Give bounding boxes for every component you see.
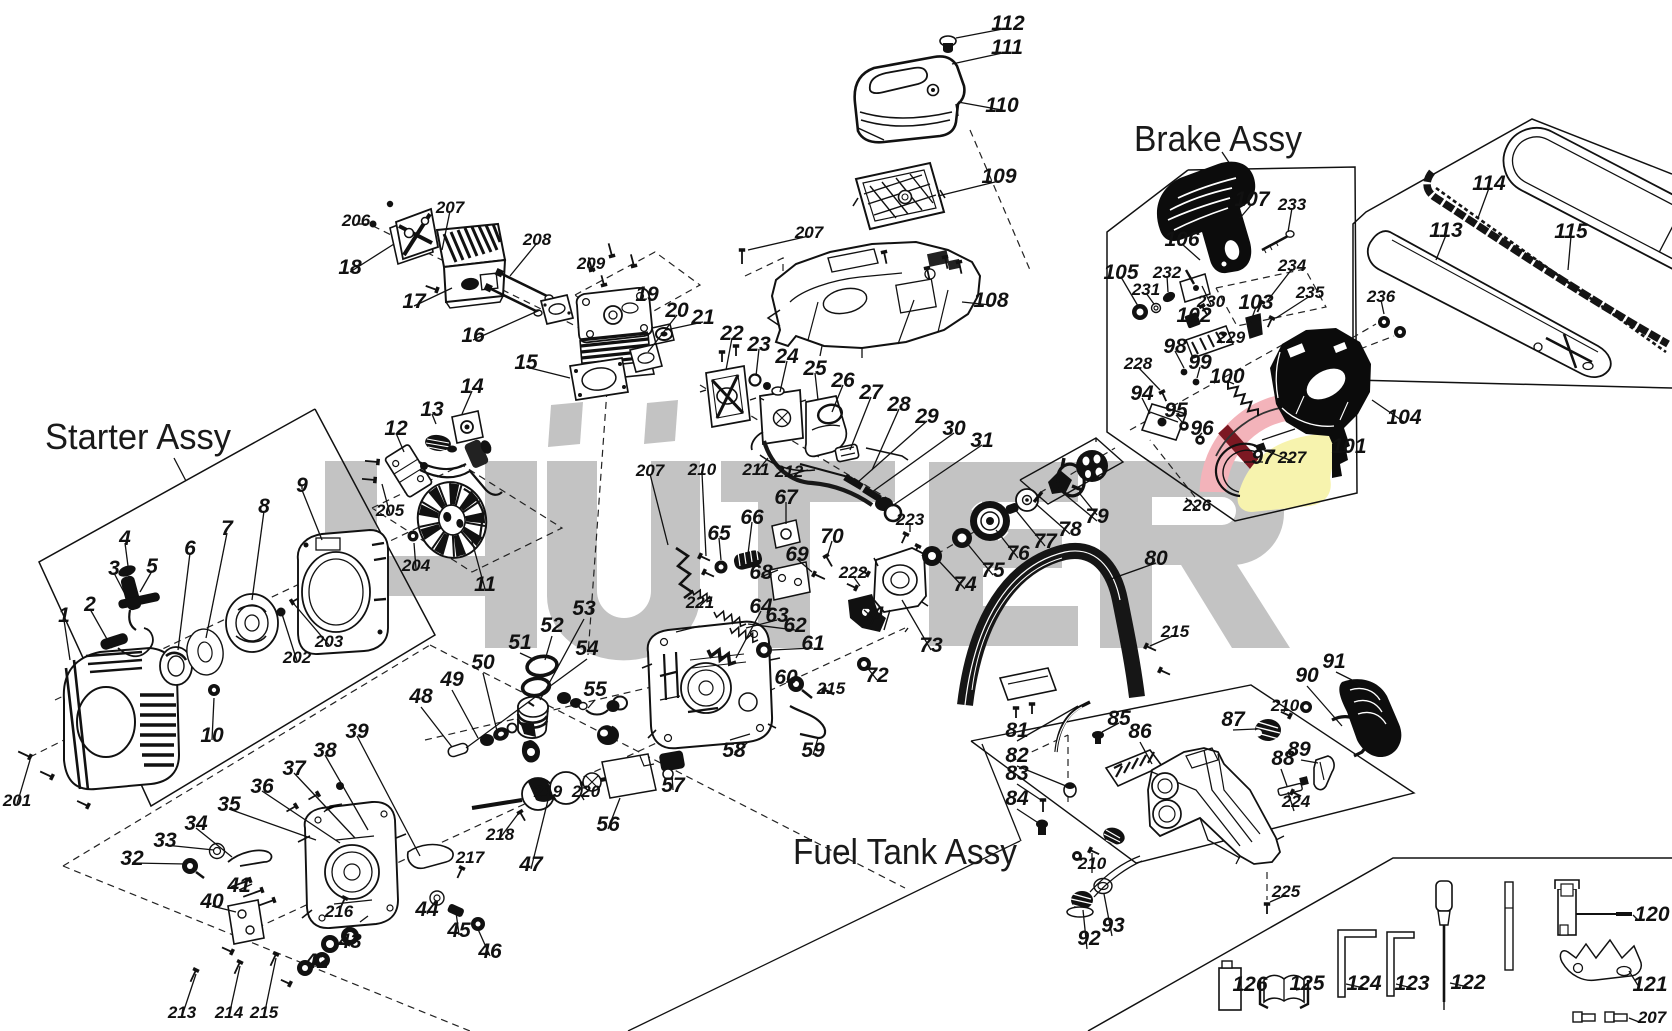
svg-text:87: 87 <box>1221 708 1246 731</box>
svg-text:71: 71 <box>862 603 885 626</box>
svg-text:57: 57 <box>661 774 686 797</box>
svg-text:209: 209 <box>576 254 606 273</box>
svg-text:14: 14 <box>460 375 484 398</box>
svg-text:8: 8 <box>258 495 270 518</box>
svg-text:19: 19 <box>635 283 659 306</box>
svg-text:230: 230 <box>1196 292 1226 311</box>
svg-text:15: 15 <box>514 351 538 374</box>
svg-text:47: 47 <box>518 853 544 876</box>
svg-text:93: 93 <box>1101 914 1125 937</box>
svg-text:53: 53 <box>572 597 596 620</box>
svg-text:37: 37 <box>282 757 307 780</box>
svg-text:213: 213 <box>167 1003 197 1022</box>
svg-text:215: 215 <box>1160 622 1190 641</box>
svg-text:39: 39 <box>345 720 369 743</box>
svg-text:89: 89 <box>1287 738 1311 761</box>
svg-text:77: 77 <box>1033 530 1058 553</box>
svg-text:38: 38 <box>313 739 337 762</box>
svg-text:12: 12 <box>384 417 408 440</box>
svg-text:210: 210 <box>687 460 717 479</box>
svg-text:75: 75 <box>981 559 1005 582</box>
svg-text:231: 231 <box>1131 280 1160 299</box>
svg-text:10: 10 <box>200 724 224 747</box>
svg-text:33: 33 <box>153 829 177 852</box>
svg-text:21: 21 <box>690 306 714 329</box>
svg-text:22: 22 <box>719 322 744 345</box>
svg-text:20: 20 <box>664 299 689 322</box>
svg-text:214: 214 <box>214 1003 244 1022</box>
svg-text:34: 34 <box>184 812 208 835</box>
svg-text:224: 224 <box>1281 792 1311 811</box>
svg-text:3: 3 <box>108 557 120 580</box>
svg-text:40: 40 <box>199 890 224 913</box>
svg-text:227: 227 <box>1277 448 1308 467</box>
svg-text:113: 113 <box>1429 219 1463 242</box>
svg-text:4: 4 <box>118 527 131 550</box>
svg-text:29: 29 <box>914 405 939 428</box>
svg-text:86: 86 <box>1128 720 1152 743</box>
svg-text:41: 41 <box>226 874 250 897</box>
svg-text:13: 13 <box>420 398 444 421</box>
svg-text:9: 9 <box>296 474 308 497</box>
svg-text:234: 234 <box>1277 256 1307 275</box>
svg-text:100: 100 <box>1209 365 1244 388</box>
svg-text:42: 42 <box>304 950 329 973</box>
svg-text:99: 99 <box>1188 351 1212 374</box>
svg-text:32: 32 <box>120 847 144 870</box>
svg-text:120: 120 <box>1634 903 1669 926</box>
svg-text:207: 207 <box>635 461 666 480</box>
svg-text:28: 28 <box>886 393 911 416</box>
svg-text:216: 216 <box>324 902 354 921</box>
svg-text:50: 50 <box>471 651 495 674</box>
svg-text:126: 126 <box>1232 973 1267 996</box>
svg-text:74: 74 <box>953 573 977 596</box>
svg-text:54: 54 <box>575 637 599 660</box>
svg-text:201: 201 <box>2 791 31 810</box>
svg-text:108: 108 <box>973 289 1008 312</box>
svg-text:81: 81 <box>1005 719 1028 742</box>
svg-text:66: 66 <box>740 506 764 529</box>
svg-text:124: 124 <box>1346 972 1381 995</box>
svg-text:5: 5 <box>146 555 158 578</box>
svg-text:80: 80 <box>1144 547 1168 570</box>
svg-text:48: 48 <box>408 685 433 708</box>
svg-text:114: 114 <box>1472 172 1506 195</box>
svg-text:31: 31 <box>970 429 993 452</box>
svg-text:121: 121 <box>1632 973 1667 996</box>
svg-text:203: 203 <box>314 632 344 651</box>
svg-text:35: 35 <box>217 793 241 816</box>
svg-text:236: 236 <box>1366 287 1396 306</box>
svg-text:27: 27 <box>858 381 884 404</box>
svg-text:215: 215 <box>249 1003 279 1022</box>
svg-text:98: 98 <box>1163 335 1187 358</box>
svg-text:67: 67 <box>774 486 799 509</box>
svg-text:221: 221 <box>685 593 714 612</box>
svg-text:91: 91 <box>1322 650 1345 673</box>
svg-text:228: 228 <box>1123 354 1153 373</box>
svg-text:212: 212 <box>774 462 804 481</box>
svg-text:78: 78 <box>1058 518 1082 541</box>
svg-text:217: 217 <box>455 848 486 867</box>
svg-text:207: 207 <box>435 198 466 217</box>
svg-text:215: 215 <box>816 679 846 698</box>
svg-text:83: 83 <box>1005 762 1029 785</box>
svg-text:101: 101 <box>1331 435 1366 458</box>
svg-text:208: 208 <box>522 230 552 249</box>
svg-text:109: 109 <box>981 165 1016 188</box>
svg-text:52: 52 <box>540 614 564 637</box>
svg-text:25: 25 <box>802 357 827 380</box>
svg-text:205: 205 <box>375 501 405 520</box>
svg-text:84: 84 <box>1005 787 1029 810</box>
svg-text:7: 7 <box>221 517 234 540</box>
svg-text:18: 18 <box>338 256 362 279</box>
svg-text:125: 125 <box>1289 972 1324 995</box>
svg-text:44: 44 <box>414 898 439 921</box>
svg-text:69: 69 <box>785 543 809 566</box>
svg-text:123: 123 <box>1394 972 1429 995</box>
svg-text:60: 60 <box>774 666 798 689</box>
svg-text:110: 110 <box>985 94 1019 117</box>
svg-text:94: 94 <box>1130 382 1154 405</box>
svg-text:220: 220 <box>571 782 601 801</box>
svg-text:233: 233 <box>1277 195 1307 214</box>
svg-text:Brake Assy: Brake Assy <box>1134 118 1302 159</box>
svg-text:1: 1 <box>58 604 70 627</box>
svg-text:Fuel Tank Assy: Fuel Tank Assy <box>793 831 1017 872</box>
svg-text:36: 36 <box>250 775 274 798</box>
svg-text:225: 225 <box>1271 882 1301 901</box>
svg-text:211: 211 <box>741 460 769 479</box>
svg-text:204: 204 <box>401 556 431 575</box>
svg-text:106: 106 <box>1164 228 1199 251</box>
svg-text:24: 24 <box>774 345 799 368</box>
svg-text:11: 11 <box>474 573 496 596</box>
svg-text:Starter Assy: Starter Assy <box>45 416 231 457</box>
svg-text:115: 115 <box>1554 220 1588 243</box>
svg-text:43: 43 <box>337 930 362 953</box>
svg-text:79: 79 <box>1085 505 1109 528</box>
svg-text:223: 223 <box>895 510 925 529</box>
svg-text:65: 65 <box>707 522 731 545</box>
svg-text:56: 56 <box>596 813 620 836</box>
svg-text:122: 122 <box>1450 971 1485 994</box>
svg-text:226: 226 <box>1182 496 1212 515</box>
svg-text:95: 95 <box>1164 399 1188 422</box>
svg-text:46: 46 <box>477 940 502 963</box>
svg-text:97: 97 <box>1251 446 1276 469</box>
svg-text:76: 76 <box>1006 542 1030 565</box>
svg-text:23: 23 <box>746 333 771 356</box>
svg-text:206: 206 <box>341 211 371 230</box>
svg-text:2: 2 <box>83 593 96 616</box>
svg-text:16: 16 <box>461 324 485 347</box>
svg-text:232: 232 <box>1152 263 1182 282</box>
svg-text:49: 49 <box>439 668 464 691</box>
svg-text:26: 26 <box>830 369 855 392</box>
svg-text:64: 64 <box>749 595 773 618</box>
svg-text:103: 103 <box>1238 291 1273 314</box>
svg-text:30: 30 <box>942 417 966 440</box>
svg-text:222: 222 <box>838 563 868 582</box>
svg-text:92: 92 <box>1077 927 1101 950</box>
svg-text:207: 207 <box>794 223 825 242</box>
svg-text:219: 219 <box>533 782 563 801</box>
svg-text:207: 207 <box>1637 1008 1668 1027</box>
svg-text:6: 6 <box>184 537 196 560</box>
svg-text:202: 202 <box>282 648 312 667</box>
svg-text:229: 229 <box>1216 328 1246 347</box>
svg-text:111: 111 <box>991 36 1023 59</box>
svg-text:17: 17 <box>402 290 427 313</box>
svg-text:235: 235 <box>1295 283 1325 302</box>
svg-text:104: 104 <box>1386 406 1421 429</box>
svg-text:210: 210 <box>1270 696 1300 715</box>
svg-text:112: 112 <box>991 12 1025 35</box>
svg-text:72: 72 <box>865 664 889 687</box>
svg-text:58: 58 <box>722 739 746 762</box>
svg-text:70: 70 <box>820 525 844 548</box>
svg-text:45: 45 <box>446 919 471 942</box>
svg-text:96: 96 <box>1190 417 1214 440</box>
svg-text:90: 90 <box>1295 664 1319 687</box>
svg-text:73: 73 <box>919 634 943 657</box>
svg-text:210: 210 <box>1077 854 1107 873</box>
svg-text:55: 55 <box>583 678 607 701</box>
svg-text:107: 107 <box>1234 188 1270 211</box>
svg-text:51: 51 <box>508 631 531 654</box>
svg-text:218: 218 <box>485 825 515 844</box>
svg-text:68: 68 <box>749 561 773 584</box>
svg-text:59: 59 <box>801 739 825 762</box>
